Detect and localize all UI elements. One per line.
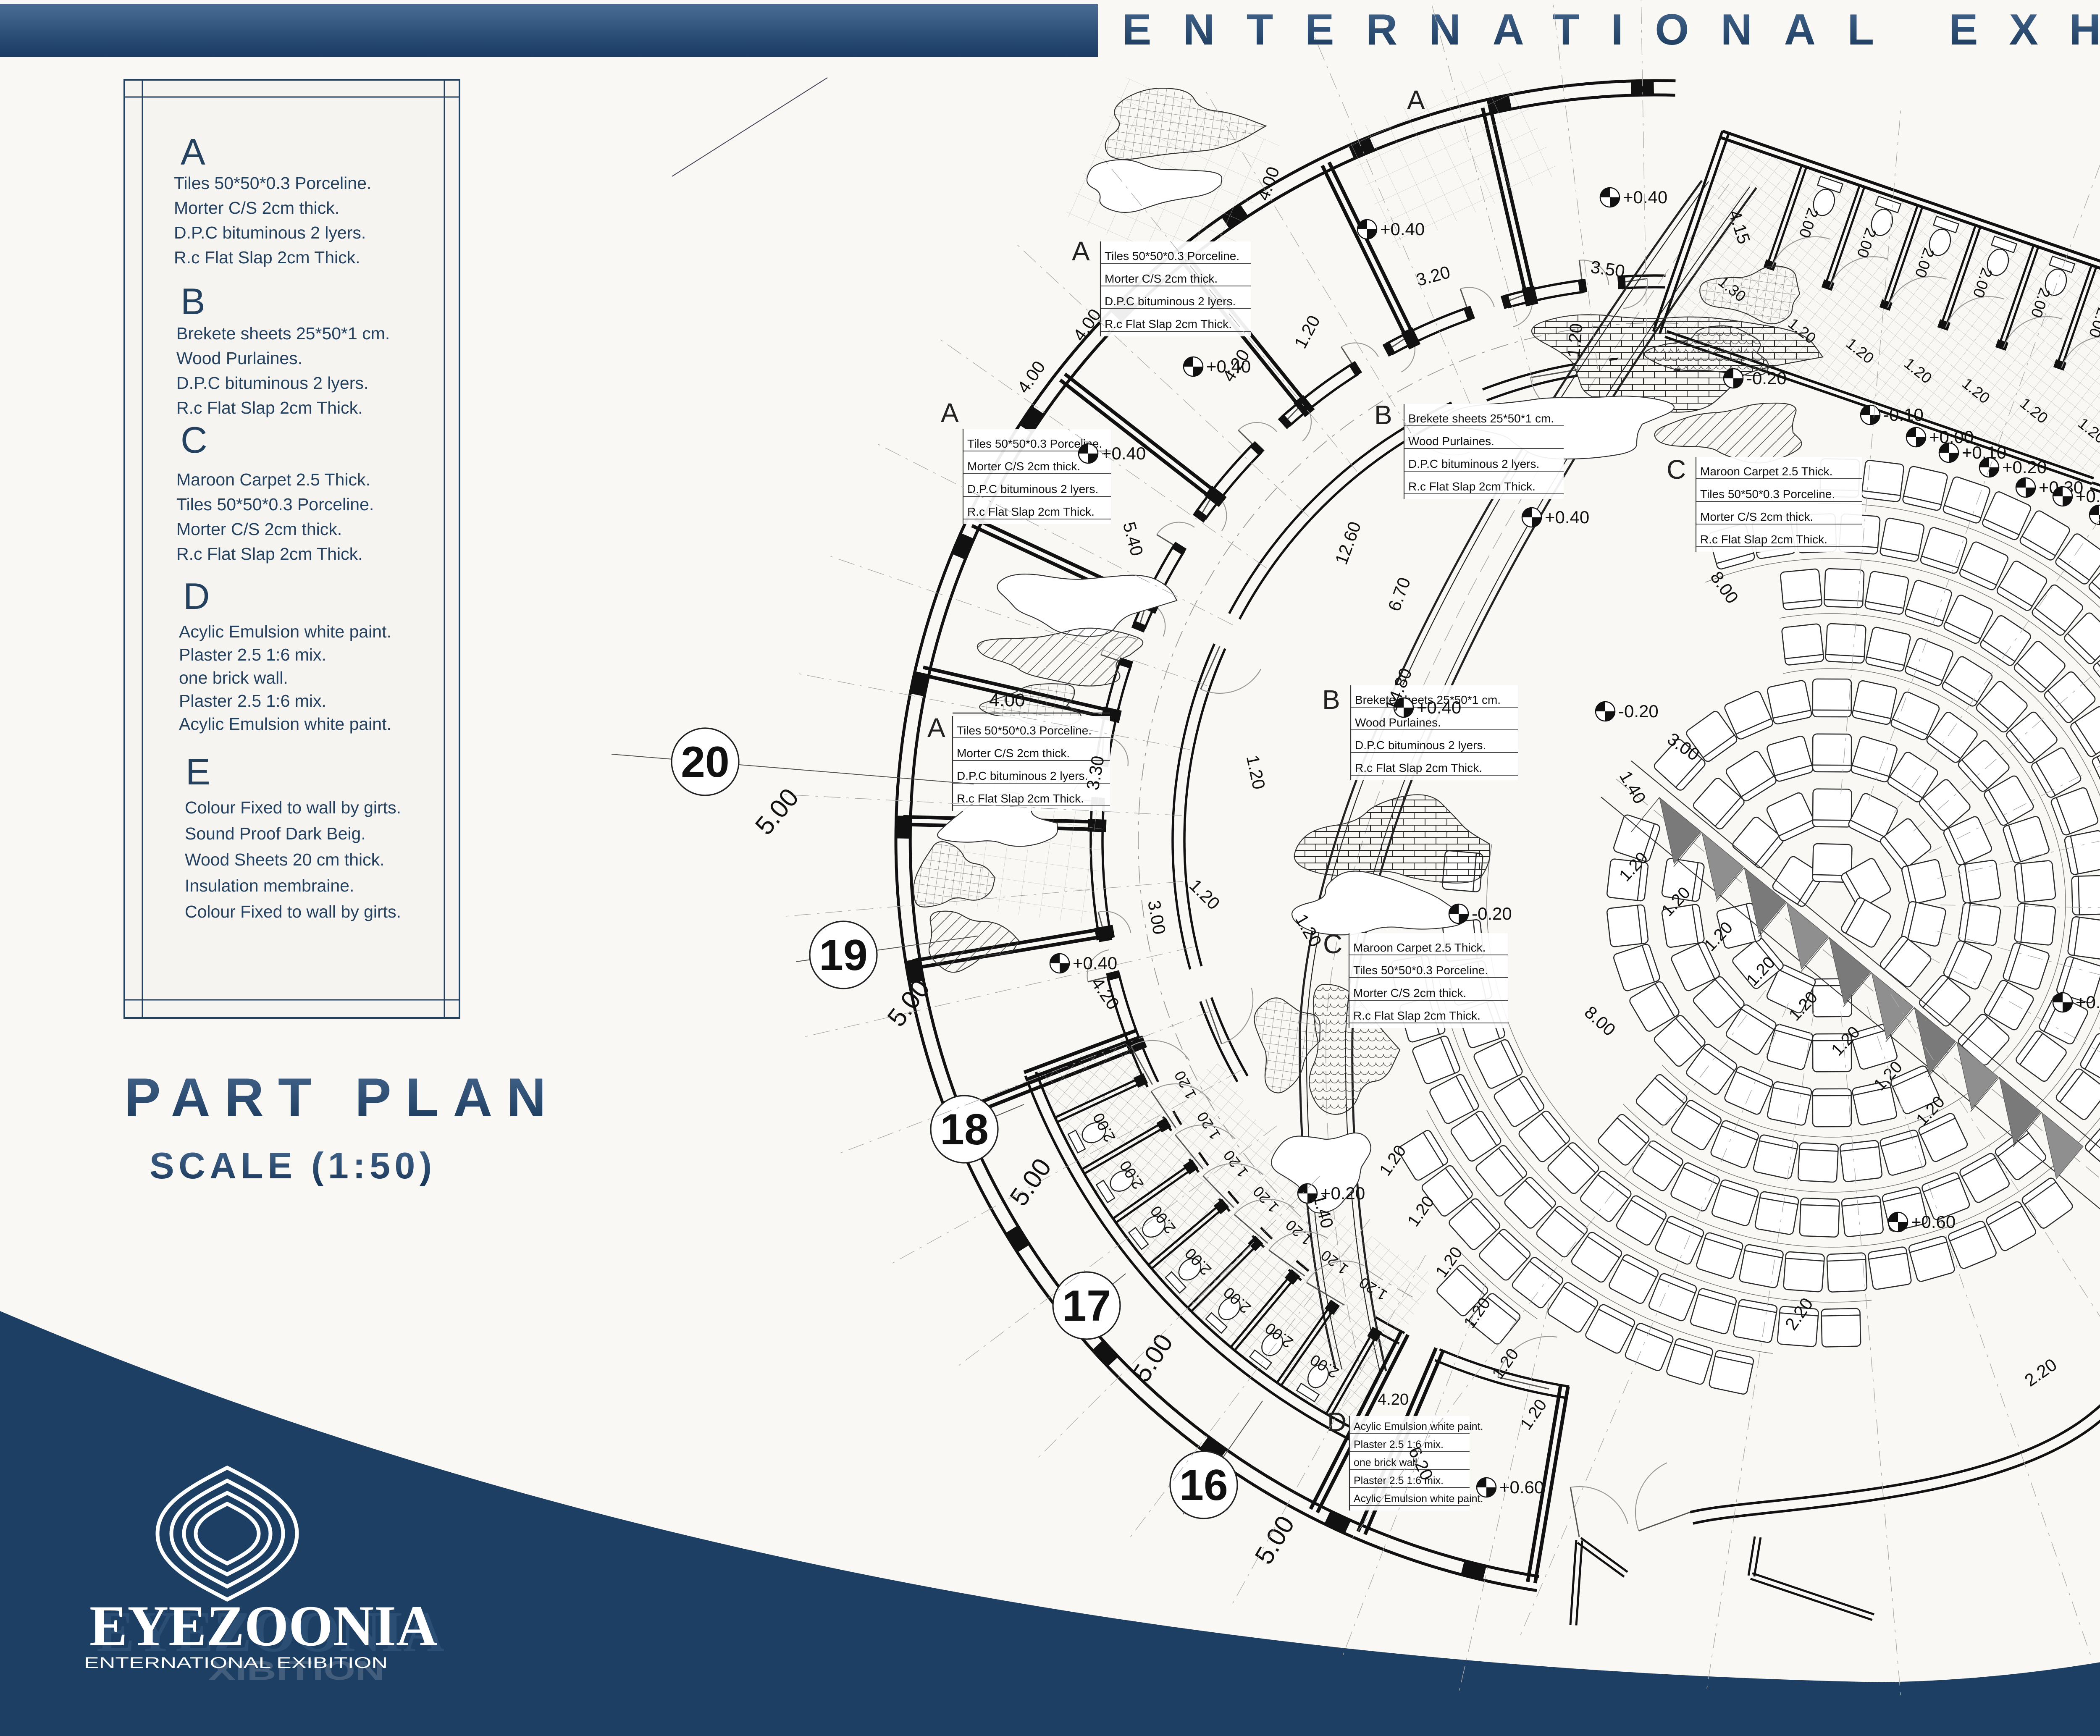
svg-text:-0.20: -0.20 <box>1746 368 1787 388</box>
svg-text:R.c Flat Slap 2cm Thick.: R.c Flat Slap 2cm Thick. <box>1408 480 1536 493</box>
svg-text:D.P.C bituminous 2 lyers.: D.P.C bituminous 2 lyers. <box>1105 295 1236 308</box>
svg-text:EXHIBITION: EXHIBITION <box>1949 5 2100 54</box>
svg-text:Wood Purlaines.: Wood Purlaines. <box>1355 716 1441 729</box>
svg-text:Plaster 2.5 1:6 mix.: Plaster 2.5 1:6 mix. <box>179 645 326 664</box>
svg-text:1.20: 1.20 <box>1243 753 1269 791</box>
svg-text:R.c Flat Slap 2cm Thick.: R.c Flat Slap 2cm Thick. <box>174 248 360 267</box>
svg-text:Sound Proof Dark Beig.: Sound Proof Dark Beig. <box>185 824 366 843</box>
svg-text:Morter C/S 2cm thick.: Morter C/S 2cm thick. <box>176 519 342 539</box>
svg-text:2.20: 2.20 <box>2021 1354 2061 1390</box>
svg-text:Plaster 2.5 1:6 mix.: Plaster 2.5 1:6 mix. <box>179 691 326 711</box>
svg-text:D.P.C bituminous 2 lyers.: D.P.C bituminous 2 lyers. <box>957 769 1088 782</box>
svg-text:3.00: 3.00 <box>1144 899 1169 936</box>
svg-text:1.20: 1.20 <box>1517 1396 1551 1433</box>
svg-text:1.20: 1.20 <box>1186 875 1224 913</box>
svg-text:12.60: 12.60 <box>1331 519 1365 567</box>
svg-text:6.70: 6.70 <box>1384 575 1414 614</box>
svg-text:-0.20: -0.20 <box>1472 904 1512 923</box>
svg-text:B: B <box>1322 684 1340 715</box>
svg-text:SCALE (1:50): SCALE (1:50) <box>150 1145 432 1186</box>
svg-text:Brekete sheets 25*50*1 cm.: Brekete sheets 25*50*1 cm. <box>176 324 390 343</box>
svg-text:Plaster 2.5 1:6 mix.: Plaster 2.5 1:6 mix. <box>1354 1439 1444 1450</box>
svg-text:A: A <box>941 398 959 428</box>
svg-text:R.c Flat Slap 2cm Thick.: R.c Flat Slap 2cm Thick. <box>176 398 363 417</box>
svg-text:Colour Fixed to wall by girts.: Colour Fixed to wall by girts. <box>185 798 401 817</box>
svg-text:-0.20: -0.20 <box>1618 701 1659 721</box>
svg-text:B: B <box>1374 400 1392 430</box>
svg-text:+0.20: +0.20 <box>2002 457 2047 477</box>
svg-text:Brekete sheets 25*50*1 cm.: Brekete sheets 25*50*1 cm. <box>1408 412 1554 425</box>
svg-text:A: A <box>1407 85 1425 115</box>
svg-text:Acylic Emulsion white paint.: Acylic Emulsion white paint. <box>179 714 391 734</box>
svg-text:1.40: 1.40 <box>1616 768 1650 807</box>
svg-text:C: C <box>1667 454 1686 485</box>
svg-text:Tiles 50*50*0.3 Porceline.: Tiles 50*50*0.3 Porceline. <box>174 173 371 193</box>
svg-text:Acylic Emulsion white paint.: Acylic Emulsion white paint. <box>1354 1421 1483 1432</box>
svg-text:Colour Fixed to wall by girts.: Colour Fixed to wall by girts. <box>185 902 401 921</box>
svg-text:5.00: 5.00 <box>1127 1329 1179 1387</box>
svg-text:+0.40: +0.40 <box>1101 443 1146 463</box>
svg-text:3.50: 3.50 <box>1589 257 1626 281</box>
svg-text:+0.60: +0.60 <box>2076 992 2100 1012</box>
svg-text:Tiles 50*50*0.3 Porceline.: Tiles 50*50*0.3 Porceline. <box>1700 488 1835 501</box>
svg-text:4.00: 4.00 <box>1069 305 1105 345</box>
svg-text:C: C <box>181 419 207 461</box>
svg-text:19: 19 <box>819 931 868 980</box>
svg-text:1.20: 1.20 <box>1564 323 1586 359</box>
svg-text:C: C <box>1323 929 1342 959</box>
svg-text:Morter C/S 2cm thick.: Morter C/S 2cm thick. <box>1105 272 1218 285</box>
svg-text:Wood Sheets 20 cm thick.: Wood Sheets 20 cm thick. <box>185 850 385 869</box>
svg-text:D.P.C bituminous 2 lyers.: D.P.C bituminous 2 lyers. <box>1408 457 1539 470</box>
svg-text:Morter C/S 2cm thick.: Morter C/S 2cm thick. <box>967 460 1080 473</box>
svg-text:Morter C/S 2cm thick.: Morter C/S 2cm thick. <box>1353 986 1466 999</box>
svg-text:Acylic Emulsion white paint.: Acylic Emulsion white paint. <box>179 622 391 641</box>
svg-text:R.c Flat Slap 2cm Thick.: R.c Flat Slap 2cm Thick. <box>1105 317 1232 330</box>
svg-text:Maroon Carpet 2.5 Thick.: Maroon Carpet 2.5 Thick. <box>1353 941 1486 954</box>
svg-text:ENTERNATIONAL EXIBITION: ENTERNATIONAL EXIBITION <box>84 1654 388 1671</box>
svg-text:Tiles 50*50*0.3 Porceline.: Tiles 50*50*0.3 Porceline. <box>957 724 1092 737</box>
svg-text:Tiles 50*50*0.3 Porceline.: Tiles 50*50*0.3 Porceline. <box>176 495 374 514</box>
svg-text:PART PLAN: PART PLAN <box>124 1067 546 1128</box>
svg-text:8.00: 8.00 <box>1706 568 1742 607</box>
svg-text:Insulation membraine.: Insulation membraine. <box>185 876 354 895</box>
svg-text:4.20: 4.20 <box>1378 1391 1409 1408</box>
svg-text:D: D <box>1327 1407 1347 1437</box>
svg-text:EYEZOONIA: EYEZOONIA <box>89 1594 437 1658</box>
svg-text:Tiles 50*50*0.3 Porceline.: Tiles 50*50*0.3 Porceline. <box>1105 249 1239 262</box>
svg-text:D.P.C bituminous 2 lyers.: D.P.C bituminous 2 lyers. <box>1355 739 1486 752</box>
svg-text:B: B <box>181 281 205 322</box>
svg-text:17: 17 <box>1062 1282 1111 1330</box>
svg-text:16: 16 <box>1179 1461 1228 1510</box>
svg-text:A: A <box>927 713 945 743</box>
svg-text:5.00: 5.00 <box>1004 1153 1057 1211</box>
svg-text:-0.10: -0.10 <box>1883 405 1924 425</box>
svg-text:Morter C/S 2cm thick.: Morter C/S 2cm thick. <box>1700 510 1813 523</box>
svg-text:ENTERNATIONAL: ENTERNATIONAL <box>1122 5 1874 54</box>
svg-text:D.P.C bituminous 2 lyers.: D.P.C bituminous 2 lyers. <box>967 483 1098 496</box>
svg-text:4.20: 4.20 <box>1087 974 1123 1013</box>
svg-text:5.00: 5.00 <box>750 783 804 840</box>
svg-text:Morter C/S 2cm thick.: Morter C/S 2cm thick. <box>174 198 339 218</box>
svg-text:R.c Flat Slap 2cm Thick.: R.c Flat Slap 2cm Thick. <box>1700 533 1827 546</box>
svg-text:R.c Flat Slap 2cm Thick.: R.c Flat Slap 2cm Thick. <box>1355 761 1482 774</box>
svg-text:A: A <box>1072 236 1090 266</box>
svg-text:R.c Flat Slap 2cm Thick.: R.c Flat Slap 2cm Thick. <box>967 505 1095 518</box>
svg-text:D: D <box>183 575 210 617</box>
svg-text:5.40: 5.40 <box>1119 520 1147 558</box>
svg-text:E: E <box>186 751 210 792</box>
svg-text:+0.60: +0.60 <box>1911 1212 1956 1232</box>
svg-text:Morter C/S 2cm thick.: Morter C/S 2cm thick. <box>957 747 1070 760</box>
svg-text:A: A <box>181 131 205 173</box>
svg-text:20: 20 <box>681 738 730 787</box>
svg-text:D.P.C bituminous 2 lyers.: D.P.C bituminous 2 lyers. <box>174 223 366 242</box>
svg-text:+0.40: +0.40 <box>1623 187 1667 207</box>
svg-text:Maroon Carpet 2.5 Thick.: Maroon Carpet 2.5 Thick. <box>1700 465 1832 478</box>
svg-text:Acylic Emulsion white paint.: Acylic Emulsion white paint. <box>1354 1493 1483 1505</box>
svg-text:R.c Flat Slap 2cm Thick.: R.c Flat Slap 2cm Thick. <box>1353 1009 1480 1022</box>
svg-text:+0.40: +0.40 <box>1545 507 1589 527</box>
svg-text:18: 18 <box>940 1105 989 1154</box>
svg-text:one brick wall.: one brick wall. <box>179 668 288 687</box>
svg-text:D.P.C bituminous 2 lyers.: D.P.C bituminous 2 lyers. <box>176 373 368 393</box>
svg-text:Maroon Carpet 2.5 Thick.: Maroon Carpet 2.5 Thick. <box>176 470 370 489</box>
svg-text:1.20: 1.20 <box>1290 312 1324 351</box>
svg-text:+0.40: +0.40 <box>1417 698 1461 717</box>
svg-text:5.00: 5.00 <box>1249 1511 1300 1569</box>
svg-text:Tiles 50*50*0.3 Porceline.: Tiles 50*50*0.3 Porceline. <box>1353 964 1488 977</box>
svg-text:R.c Flat Slap 2cm Thick.: R.c Flat Slap 2cm Thick. <box>957 792 1084 805</box>
svg-text:+0.40: +0.40 <box>1380 219 1425 239</box>
svg-text:Wood Purlaines.: Wood Purlaines. <box>1408 435 1494 448</box>
svg-text:8.00: 8.00 <box>1581 1002 1620 1040</box>
svg-text:4.00: 4.00 <box>989 690 1025 711</box>
svg-text:R.c Flat Slap 2cm Thick.: R.c Flat Slap 2cm Thick. <box>176 544 363 564</box>
svg-text:+0.40: +0.40 <box>1073 953 1117 973</box>
svg-text:+0.40: +0.40 <box>2076 486 2100 506</box>
svg-text:Wood Purlaines.: Wood Purlaines. <box>176 349 302 368</box>
